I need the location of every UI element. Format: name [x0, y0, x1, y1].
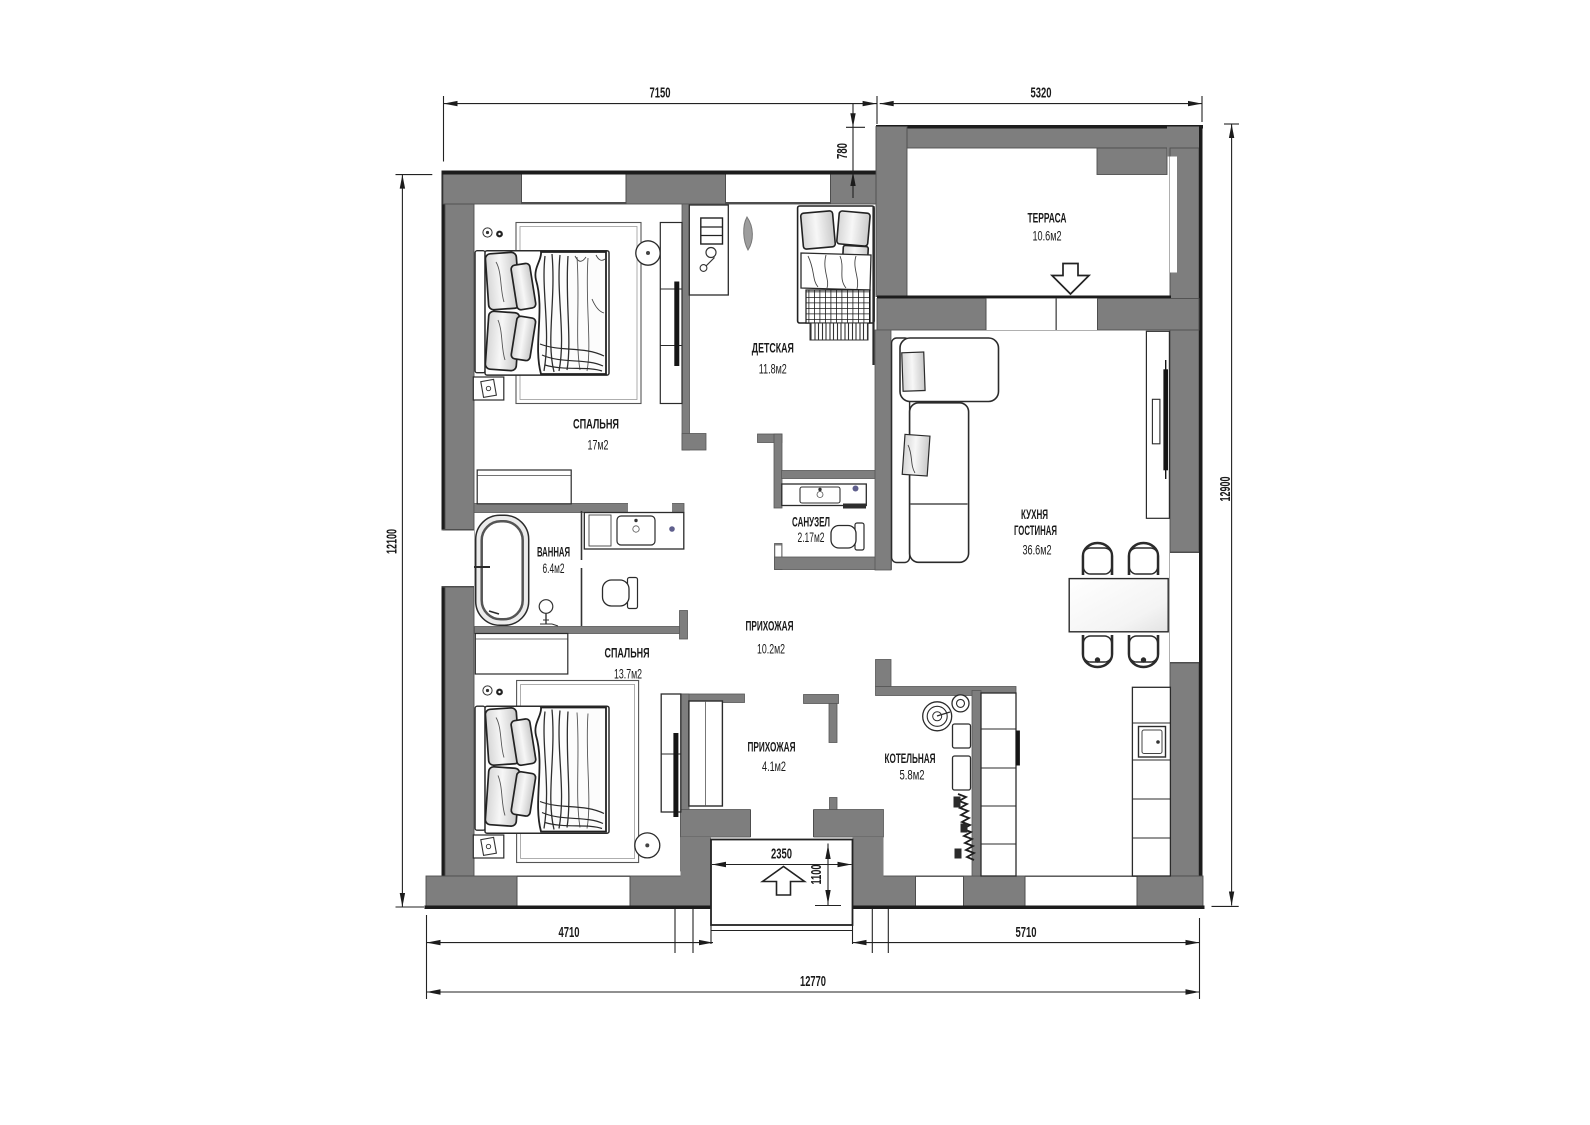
svg-text:10.2м2: 10.2м2	[757, 642, 785, 657]
svg-text:11.8м2: 11.8м2	[759, 362, 787, 377]
svg-text:10.6м2: 10.6м2	[1033, 229, 1062, 244]
svg-text:36.6м2: 36.6м2	[1023, 543, 1052, 558]
svg-text:КОТЕЛЬНАЯ: КОТЕЛЬНАЯ	[885, 751, 936, 767]
svg-text:ПРИХОЖАЯ: ПРИХОЖАЯ	[748, 740, 796, 756]
svg-text:12100: 12100	[385, 529, 401, 554]
svg-text:17м2: 17м2	[588, 438, 609, 453]
svg-text:КУХНЯ: КУХНЯ	[1021, 507, 1048, 523]
svg-text:5710: 5710	[1016, 925, 1037, 941]
svg-text:ГОСТИНАЯ: ГОСТИНАЯ	[1014, 523, 1057, 539]
svg-text:5320: 5320	[1031, 86, 1052, 102]
svg-text:СПАЛЬНЯ: СПАЛЬНЯ	[605, 646, 650, 662]
svg-text:ПРИХОЖАЯ: ПРИХОЖАЯ	[746, 619, 794, 635]
svg-text:13.7м2: 13.7м2	[614, 667, 642, 682]
svg-text:2.17м2: 2.17м2	[798, 530, 825, 545]
svg-text:ВАННАЯ: ВАННАЯ	[537, 545, 570, 561]
svg-text:12900: 12900	[1218, 477, 1234, 502]
svg-text:780: 780	[835, 143, 851, 159]
svg-text:ТЕРРАСА: ТЕРРАСА	[1028, 211, 1067, 227]
svg-text:САНУЗЕЛ: САНУЗЕЛ	[792, 515, 830, 531]
svg-text:ДЕТСКАЯ: ДЕТСКАЯ	[752, 341, 794, 357]
svg-text:5.8м2: 5.8м2	[900, 768, 925, 783]
svg-text:СПАЛЬНЯ: СПАЛЬНЯ	[573, 417, 619, 433]
svg-text:4710: 4710	[559, 925, 580, 941]
svg-text:2350: 2350	[771, 847, 792, 863]
svg-text:6.4м2: 6.4м2	[543, 561, 565, 576]
svg-text:4.1м2: 4.1м2	[762, 759, 786, 774]
svg-text:1100: 1100	[809, 865, 825, 885]
svg-text:12770: 12770	[800, 974, 826, 990]
svg-text:7150: 7150	[650, 86, 671, 102]
